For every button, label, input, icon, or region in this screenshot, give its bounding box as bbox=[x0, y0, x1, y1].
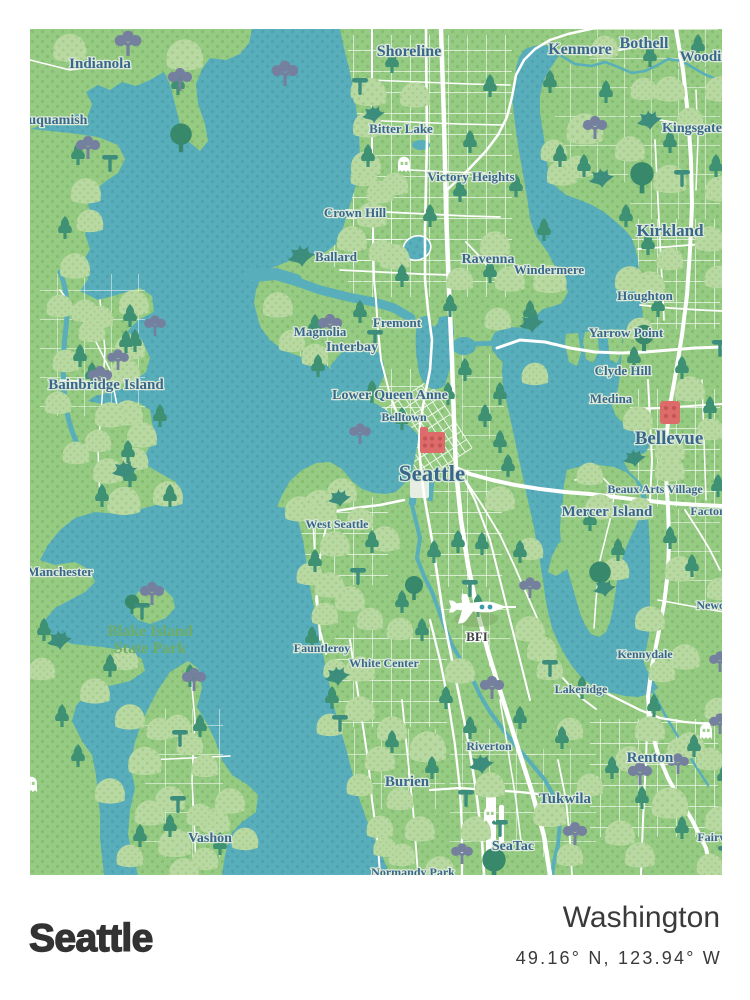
svg-text:Medina: Medina bbox=[590, 391, 633, 406]
svg-text:Lakeridge: Lakeridge bbox=[555, 682, 608, 696]
svg-text:White Center: White Center bbox=[349, 656, 419, 670]
svg-text:Riverton: Riverton bbox=[466, 739, 512, 753]
svg-text:SeaTac: SeaTac bbox=[492, 839, 534, 854]
svg-text:Bitter Lake: Bitter Lake bbox=[369, 121, 433, 136]
svg-text:Woodinville: Woodinville bbox=[680, 49, 722, 65]
svg-text:Seattle: Seattle bbox=[399, 461, 465, 486]
svg-text:Shoreline: Shoreline bbox=[377, 43, 442, 60]
svg-text:Indianola: Indianola bbox=[69, 56, 131, 72]
svg-text:Lower Queen Anne: Lower Queen Anne bbox=[332, 388, 448, 403]
svg-text:Windermere: Windermere bbox=[514, 262, 585, 277]
svg-text:Yarrow Point: Yarrow Point bbox=[589, 325, 664, 340]
svg-text:Ballard: Ballard bbox=[315, 249, 358, 264]
svg-text:Mercer Island: Mercer Island bbox=[562, 504, 653, 520]
svg-text:Belltown: Belltown bbox=[381, 410, 427, 424]
svg-text:Normandy Park: Normandy Park bbox=[371, 865, 455, 875]
svg-text:Burien: Burien bbox=[385, 774, 430, 790]
svg-text:Crown Hill: Crown Hill bbox=[324, 205, 387, 220]
svg-text:BFI: BFI bbox=[466, 629, 488, 644]
svg-text:Bainbridge Island: Bainbridge Island bbox=[48, 377, 164, 393]
svg-text:Suquamish: Suquamish bbox=[30, 113, 88, 128]
svg-text:Kirkland: Kirkland bbox=[636, 221, 704, 240]
svg-text:Beaux Arts Village: Beaux Arts Village bbox=[607, 482, 703, 496]
svg-text:Manchester: Manchester bbox=[30, 564, 93, 579]
svg-text:State Park: State Park bbox=[114, 640, 187, 657]
svg-text:Vashon: Vashon bbox=[188, 831, 232, 846]
svg-text:Renton: Renton bbox=[627, 750, 674, 766]
svg-text:Fairwood: Fairwood bbox=[697, 830, 722, 844]
svg-text:Kenmore: Kenmore bbox=[548, 41, 612, 58]
svg-text:Kingsgate: Kingsgate bbox=[662, 121, 722, 136]
svg-text:Tukwila: Tukwila bbox=[539, 791, 591, 807]
svg-text:West Seattle: West Seattle bbox=[306, 517, 370, 531]
svg-text:Blake Island: Blake Island bbox=[107, 623, 193, 640]
svg-text:Newcastle: Newcastle bbox=[696, 598, 722, 612]
svg-text:Bothell: Bothell bbox=[620, 35, 669, 52]
svg-text:Ravenna: Ravenna bbox=[462, 252, 515, 267]
svg-text:Fauntleroy: Fauntleroy bbox=[294, 641, 350, 655]
svg-text:Victory Heights: Victory Heights bbox=[427, 169, 514, 184]
svg-text:Fremont: Fremont bbox=[373, 315, 422, 330]
svg-text:Interbay: Interbay bbox=[326, 340, 378, 355]
svg-text:Houghton: Houghton bbox=[617, 288, 673, 303]
svg-text:Factoria: Factoria bbox=[690, 504, 722, 518]
svg-text:Bellevue: Bellevue bbox=[635, 428, 704, 449]
svg-text:Kennydale: Kennydale bbox=[617, 647, 673, 661]
svg-text:Magnolia: Magnolia bbox=[294, 324, 347, 339]
svg-text:Clyde Hill: Clyde Hill bbox=[595, 363, 652, 378]
